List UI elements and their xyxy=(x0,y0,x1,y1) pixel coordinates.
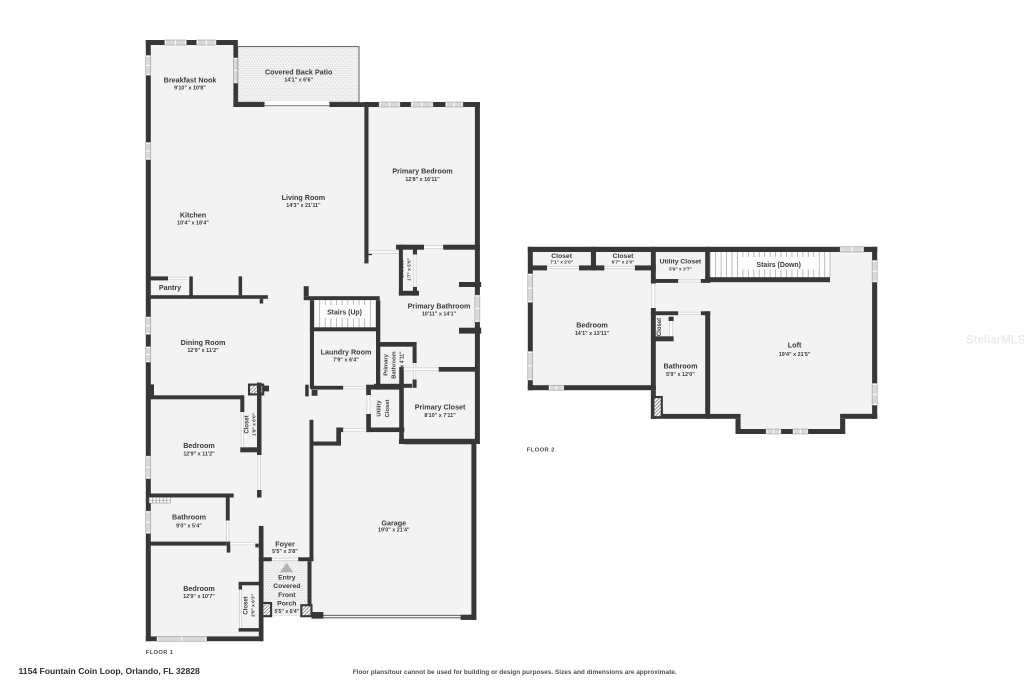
svg-text:Stairs (Up): Stairs (Up) xyxy=(327,310,362,317)
svg-text:Primary: Primary xyxy=(384,353,390,375)
svg-text:Covered Back Patio: Covered Back Patio xyxy=(265,68,333,77)
svg-text:12'9" x 11'2": 12'9" x 11'2" xyxy=(183,451,215,457)
svg-text:9'0" x 5'4": 9'0" x 5'4" xyxy=(176,523,202,529)
svg-text:Bedroom: Bedroom xyxy=(576,320,608,329)
svg-text:3'7" x 4'11": 3'7" x 4'11" xyxy=(400,351,406,379)
svg-text:Floor plans/tour cannot be use: Floor plans/tour cannot be used for buil… xyxy=(353,669,677,676)
svg-text:10'11" x 14'1": 10'11" x 14'1" xyxy=(422,311,457,317)
svg-text:Utility Closet: Utility Closet xyxy=(660,258,702,265)
svg-text:5'9" x 12'0": 5'9" x 12'0" xyxy=(666,372,695,378)
svg-text:FLOOR 1: FLOOR 1 xyxy=(146,650,174,656)
svg-text:7'1" x 2'0": 7'1" x 2'0" xyxy=(550,260,573,266)
svg-text:12'9" x 10'7": 12'9" x 10'7" xyxy=(183,594,215,600)
svg-text:Breakfast Nook: Breakfast Nook xyxy=(164,76,217,85)
svg-text:Utility: Utility xyxy=(377,400,383,417)
svg-text:12'9" x 11'2": 12'9" x 11'2" xyxy=(187,348,219,354)
svg-text:10'4" x 18'4": 10'4" x 18'4" xyxy=(177,221,209,227)
svg-text:Bedroom: Bedroom xyxy=(183,441,215,450)
svg-text:Closet: Closet xyxy=(551,253,573,260)
svg-text:7'9" x 6'4": 7'9" x 6'4" xyxy=(333,358,359,364)
svg-text:1'9" x 6'0": 1'9" x 6'0" xyxy=(251,413,257,436)
svg-text:9'10" x 10'8": 9'10" x 10'8" xyxy=(174,86,206,92)
svg-text:Covered: Covered xyxy=(273,583,300,590)
svg-text:Closet: Closet xyxy=(244,596,250,614)
svg-text:Primary Bathroom: Primary Bathroom xyxy=(408,301,471,310)
svg-text:Primary Bedroom: Primary Bedroom xyxy=(392,167,452,176)
svg-text:Porch: Porch xyxy=(277,600,296,607)
svg-text:6'7" x 2'0": 6'7" x 2'0" xyxy=(612,260,635,266)
svg-text:Living Room: Living Room xyxy=(282,193,326,202)
svg-text:1154 Fountain Coin Loop, Orlan: 1154 Fountain Coin Loop, Orlando, FL 328… xyxy=(19,666,201,676)
svg-text:Garage: Garage xyxy=(381,518,406,527)
svg-text:1'7" x 5'6": 1'7" x 5'6" xyxy=(407,258,413,281)
svg-text:Bathroom: Bathroom xyxy=(664,362,698,371)
svg-text:14'1" x 6'6": 14'1" x 6'6" xyxy=(284,78,313,84)
svg-text:Laundry Room: Laundry Room xyxy=(321,348,372,357)
svg-text:Front: Front xyxy=(278,592,296,599)
svg-text:2'0" x 6'3": 2'0" x 6'3" xyxy=(251,594,257,617)
svg-text:Loft: Loft xyxy=(788,341,802,350)
svg-text:5'5" x 6'4": 5'5" x 6'4" xyxy=(274,609,299,615)
svg-text:Primary Closet: Primary Closet xyxy=(415,403,466,412)
svg-text:Closet: Closet xyxy=(657,318,663,336)
svg-text:8'10" x 7'11": 8'10" x 7'11" xyxy=(424,413,456,419)
svg-text:Foyer: Foyer xyxy=(275,540,295,549)
svg-text:12'8" x 16'11": 12'8" x 16'11" xyxy=(405,177,440,183)
svg-text:Pantry: Pantry xyxy=(159,283,181,292)
svg-text:Bathroom: Bathroom xyxy=(392,351,398,378)
svg-text:Bathroom: Bathroom xyxy=(172,513,206,522)
svg-text:Closet: Closet xyxy=(400,260,406,278)
svg-text:Closet: Closet xyxy=(385,400,391,418)
svg-text:14'3" x 21'11": 14'3" x 21'11" xyxy=(286,203,321,209)
svg-text:Bedroom: Bedroom xyxy=(183,584,215,593)
svg-text:FLOOR 2: FLOOR 2 xyxy=(527,448,555,454)
svg-text:Stairs (Down): Stairs (Down) xyxy=(756,262,800,269)
svg-text:Closet: Closet xyxy=(244,415,250,433)
svg-text:5'9" x 3'7": 5'9" x 3'7" xyxy=(669,267,692,273)
svg-text:Closet: Closet xyxy=(613,253,635,260)
svg-text:Kitchen: Kitchen xyxy=(180,211,206,220)
svg-text:StellarMLS: StellarMLS xyxy=(966,335,1024,347)
svg-text:Entry: Entry xyxy=(278,574,296,581)
svg-text:5'5" x 3'8": 5'5" x 3'8" xyxy=(272,549,298,555)
svg-text:19'4" x 21'5": 19'4" x 21'5" xyxy=(779,352,811,358)
svg-text:19'0" x 21'4": 19'0" x 21'4" xyxy=(378,528,410,534)
svg-text:14'1" x 13'11": 14'1" x 13'11" xyxy=(575,331,610,337)
svg-text:Dining Room: Dining Room xyxy=(181,338,226,347)
